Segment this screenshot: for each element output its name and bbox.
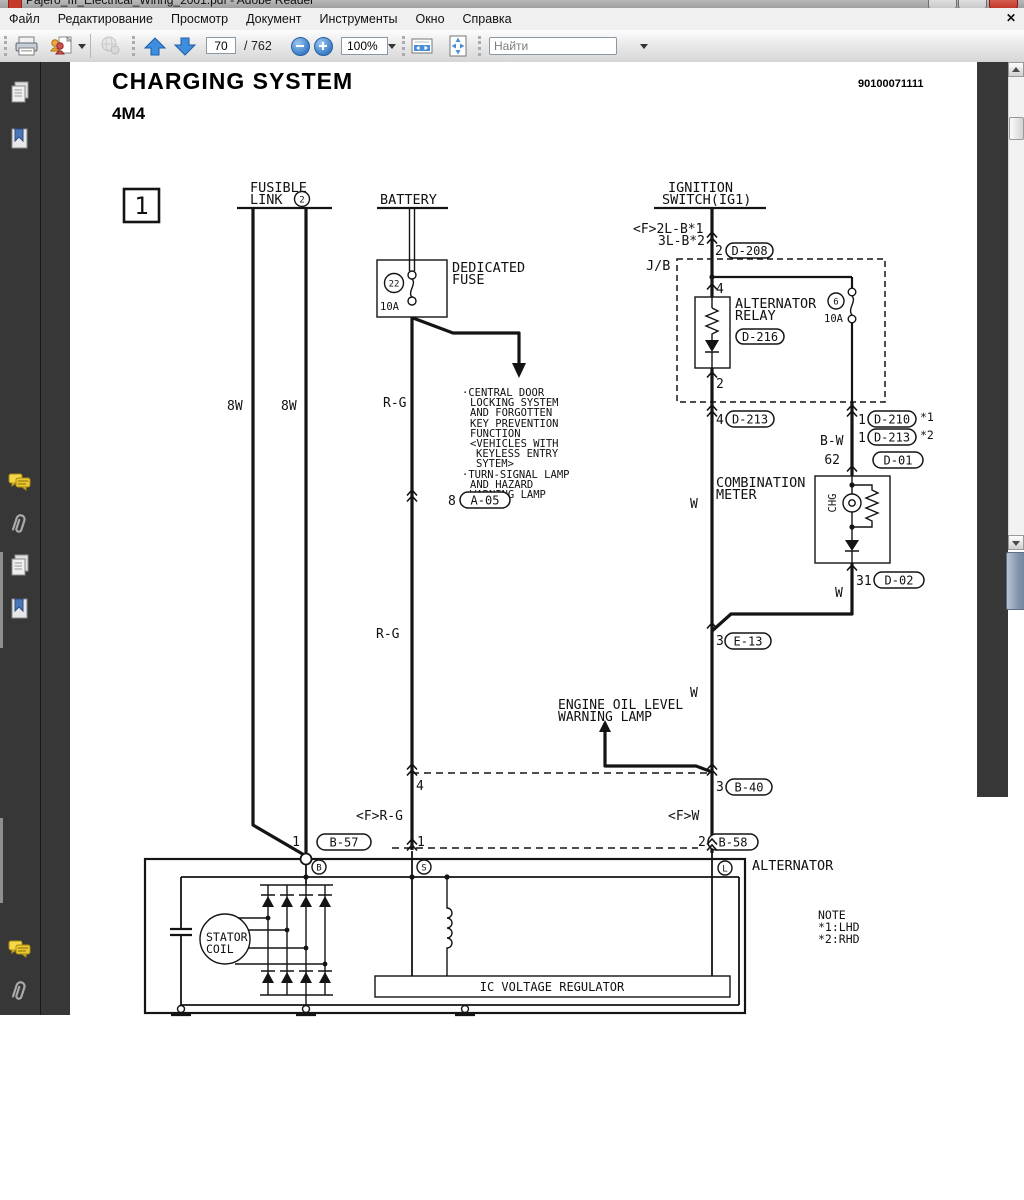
page-number-input[interactable] xyxy=(206,37,236,54)
zoom-level-value[interactable]: 100% xyxy=(341,37,388,55)
menu-file[interactable]: Файл xyxy=(0,9,49,29)
pane-divider[interactable] xyxy=(40,62,41,1015)
comments-panel-icon[interactable] xyxy=(7,471,33,497)
toolbar: / 762 100% xyxy=(0,30,1024,63)
find-input[interactable] xyxy=(489,37,617,55)
menu-help[interactable]: Справка xyxy=(454,9,521,29)
page-title: CHARGING SYSTEM xyxy=(112,68,353,95)
fit-page-icon[interactable] xyxy=(446,35,470,57)
zoom-out-button[interactable] xyxy=(291,37,310,56)
zoom-dropdown-caret[interactable] xyxy=(388,44,396,49)
minimize-button[interactable] xyxy=(928,0,957,8)
edge-sliver xyxy=(0,552,3,648)
document-close-icon[interactable]: ✕ xyxy=(1006,11,1016,25)
menu-view[interactable]: Просмотр xyxy=(162,9,237,29)
share-dropdown-caret[interactable] xyxy=(78,44,86,49)
fit-width-icon[interactable] xyxy=(410,35,434,57)
scroll-up-icon[interactable] xyxy=(1008,62,1024,77)
bookmarks-panel-icon[interactable] xyxy=(7,596,33,622)
scroll-down-icon[interactable] xyxy=(1008,535,1024,550)
print-icon[interactable] xyxy=(14,35,40,57)
attachments-panel-icon[interactable] xyxy=(7,511,33,537)
document-number: 90100071111 xyxy=(858,78,923,90)
menu-tools[interactable]: Инструменты xyxy=(311,9,407,29)
pdf-page xyxy=(70,62,977,1015)
engine-code: 4M4 xyxy=(112,104,145,124)
next-page-icon[interactable] xyxy=(173,36,197,57)
menu-bar: Файл Редактирование Просмотр Документ Ин… xyxy=(0,8,1024,31)
pages-panel-icon[interactable] xyxy=(7,80,33,106)
scrollbar-thumb[interactable] xyxy=(1009,117,1024,140)
pages-panel-icon[interactable] xyxy=(7,553,33,579)
collaboration-icon-disabled xyxy=(98,35,124,57)
comments-panel-icon[interactable] xyxy=(7,938,33,964)
close-button[interactable] xyxy=(989,0,1018,8)
menu-document[interactable]: Документ xyxy=(237,9,310,29)
toolbar-grip xyxy=(132,36,138,56)
toolbar-grip xyxy=(402,36,408,56)
maximize-button[interactable] xyxy=(958,0,987,8)
menu-window[interactable]: Окно xyxy=(406,9,453,29)
scrollbar-thumb-secondary[interactable] xyxy=(1006,552,1024,610)
share-review-icon[interactable] xyxy=(48,35,74,57)
title-bar[interactable]: Pajero_III_Electrical_Wiring_2001.pdf - … xyxy=(0,0,1024,8)
bookmarks-panel-icon[interactable] xyxy=(7,126,33,152)
adobe-reader-window: Pajero_III_Electrical_Wiring_2001.pdf - … xyxy=(0,0,1024,1200)
find-dropdown-caret[interactable] xyxy=(640,44,648,49)
window-title: Pajero_III_Electrical_Wiring_2001.pdf - … xyxy=(26,0,314,7)
attachments-panel-icon[interactable] xyxy=(7,978,33,1004)
edge-sliver xyxy=(0,818,3,903)
page-total: / 762 xyxy=(244,39,272,53)
toolbar-separator xyxy=(90,34,91,58)
pdf-file-icon xyxy=(8,0,22,8)
previous-page-icon[interactable] xyxy=(143,36,167,57)
toolbar-grip xyxy=(478,36,484,56)
menu-edit[interactable]: Редактирование xyxy=(49,9,162,29)
zoom-in-button[interactable] xyxy=(314,37,333,56)
page-background xyxy=(977,62,1008,797)
toolbar-grip xyxy=(4,36,10,56)
navigation-pane xyxy=(0,62,70,1015)
